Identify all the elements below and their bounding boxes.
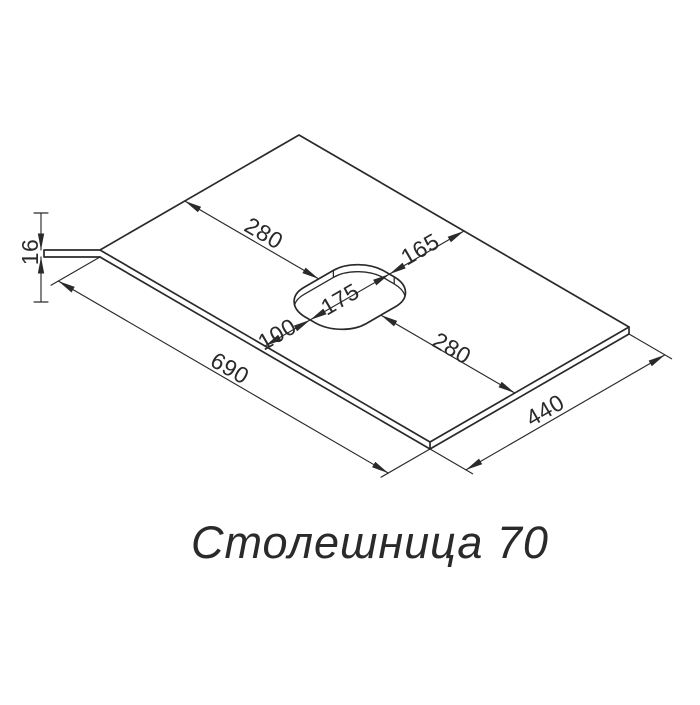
countertop-technical-drawing: 690 440 280 280 165 175 100 16 Столешниц… xyxy=(0,0,700,700)
dim-text-thickness-16: 16 xyxy=(17,239,43,266)
arrowhead-440-bottom xyxy=(466,459,482,470)
drawing-canvas: 690 440 280 280 165 175 100 16 Столешниц… xyxy=(0,0,700,700)
arrowhead-440-top xyxy=(649,355,665,366)
dim-text-depth-440: 440 xyxy=(521,389,569,431)
drawing-title: Столешница 70 xyxy=(191,517,549,568)
arrowhead-690-right xyxy=(372,462,388,473)
arrowhead-690-left xyxy=(58,281,74,292)
edge-profile-bar xyxy=(44,250,100,257)
dim-text-length-690: 690 xyxy=(206,347,254,389)
